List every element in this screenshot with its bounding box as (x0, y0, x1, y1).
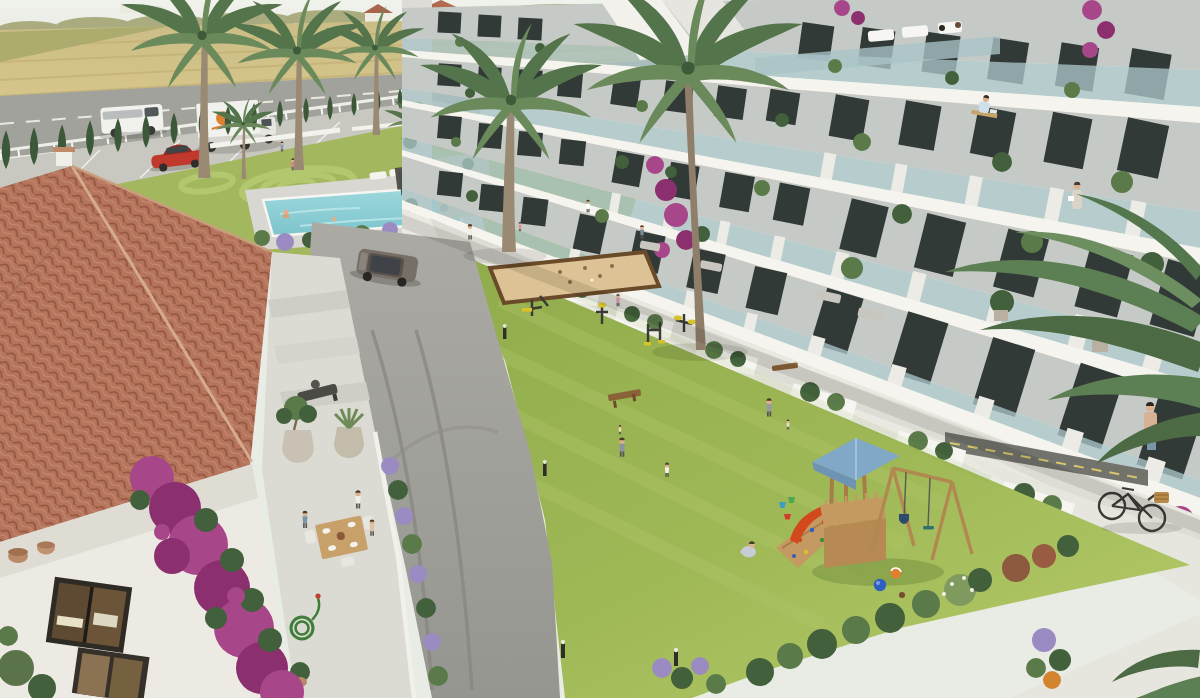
house-window-1 (46, 577, 132, 653)
chimney (56, 150, 72, 166)
bike-basket (1154, 492, 1169, 503)
render-canvas: Aerial 3D architectural rendering of a c… (0, 0, 1200, 698)
white-van (97, 103, 167, 141)
agave-pot (334, 408, 364, 458)
architectural-render: Bird's-eye render: white apartment block… (0, 0, 1200, 698)
red-bush (1002, 554, 1030, 582)
orange-flowers (1043, 671, 1061, 689)
